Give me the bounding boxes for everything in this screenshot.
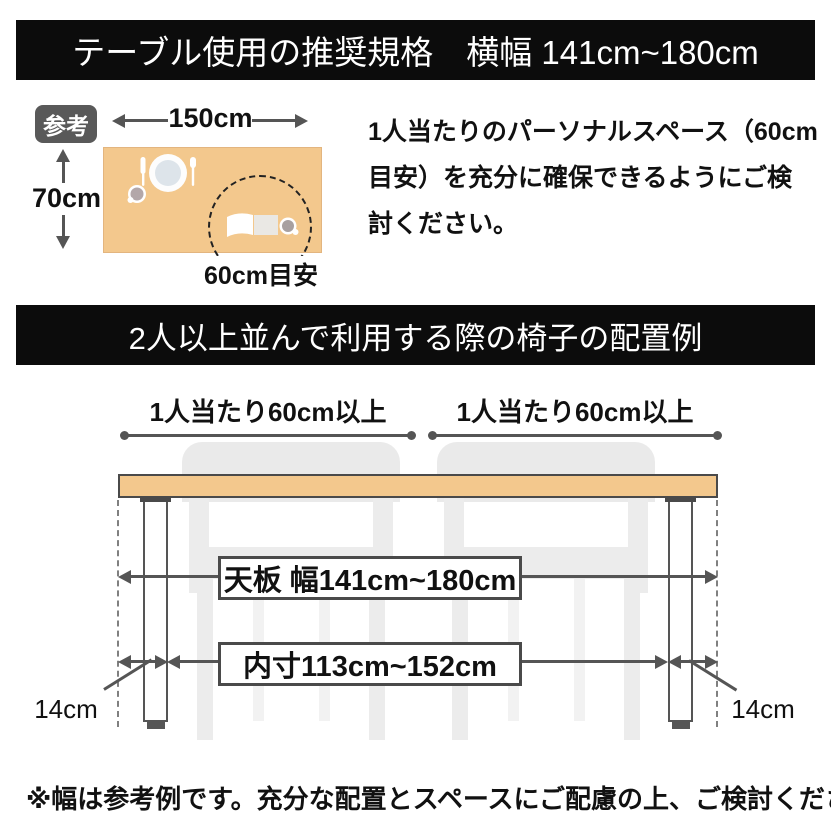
- knife-icon: [141, 157, 146, 186]
- table-leg-cap-right: [665, 497, 696, 502]
- table-leg-left: [143, 496, 168, 722]
- coffee-cup-icon: [280, 218, 299, 236]
- inner-arrowhead-right-icon: [655, 655, 668, 669]
- tabletop-width-box: 天板 幅141cm~180cm: [218, 556, 522, 600]
- middle-banner-title: 2人以上並んで利用する際の椅子の配置例: [129, 313, 703, 358]
- top-banner-title: テーブル使用の推奨規格 横幅 141cm~180cm: [72, 26, 759, 74]
- fork-icon: [190, 157, 196, 186]
- depth-arrow-line-bottom: [62, 215, 65, 237]
- reading-set-svg: [223, 209, 303, 241]
- width-arrowhead-right-icon: [295, 114, 308, 128]
- dim-dot-icon: [407, 431, 416, 440]
- table-leg-cap-left: [140, 497, 171, 502]
- table-spec-infographic: テーブル使用の推奨規格 横幅 141cm~180cm 参考 150cm 70cm: [0, 0, 831, 831]
- offset-right-arrowhead-right-icon: [705, 655, 718, 669]
- table-leg-foot-right: [672, 721, 690, 729]
- open-book-icon: [227, 213, 278, 237]
- reading-set-icons: [223, 209, 303, 246]
- reference-note-line3: 討ください。: [368, 201, 818, 247]
- per-person-right-label: 1人当たり60cm以上: [437, 392, 713, 429]
- per-person-left-label: 1人当たり60cm以上: [130, 392, 406, 429]
- inner-arrow-line-right: [522, 660, 656, 663]
- personal-space-label: 60cm目安: [202, 256, 320, 292]
- place-setting-icons: [126, 151, 204, 210]
- tabletop-arrow-line-right: [522, 575, 706, 578]
- table-width-label: 150cm: [168, 103, 253, 134]
- plate-icon: [149, 154, 187, 192]
- leg-offset-left-label: 14cm: [28, 694, 104, 725]
- table-edge-guide-right: [716, 500, 718, 727]
- cup-icon: [128, 185, 147, 203]
- tabletop-arrow-line-left: [130, 575, 218, 578]
- dim-dot-icon: [120, 431, 129, 440]
- table-depth-label: 70cm: [32, 183, 98, 214]
- tabletop-arrowhead-right-icon: [705, 570, 718, 584]
- dim-dot-icon: [713, 431, 722, 440]
- table-edge-guide-left: [117, 500, 119, 727]
- table-leg-right: [668, 496, 693, 722]
- leg-offset-right-label: 14cm: [725, 694, 801, 725]
- table-leg-foot-left: [147, 721, 165, 729]
- middle-banner: 2人以上並んで利用する際の椅子の配置例: [16, 305, 815, 365]
- place-setting-svg: [126, 151, 204, 205]
- inner-arrow-line-left: [179, 660, 218, 663]
- reference-note-line1: 1人当たりのパーソナルスペース（60cm: [368, 109, 818, 155]
- reference-note: 1人当たりのパーソナルスペース（60cm 目安）を充分に確保できるようにご検 討…: [368, 109, 818, 247]
- width-arrow-line-left: [124, 119, 168, 122]
- tabletop-side-view: [118, 474, 718, 498]
- depth-arrowhead-down-icon: [56, 236, 70, 249]
- per-person-left-line: [125, 434, 412, 437]
- offset-left-arrowhead-right-icon: [155, 655, 168, 669]
- reference-note-line2: 目安）を充分に確保できるようにご検: [368, 155, 818, 201]
- depth-arrow-line-top: [62, 161, 65, 183]
- per-person-right-line: [433, 434, 718, 437]
- inner-width-box: 内寸113cm~152cm: [218, 642, 522, 686]
- top-banner: テーブル使用の推奨規格 横幅 141cm~180cm: [16, 20, 815, 80]
- width-arrow-line-right: [252, 119, 296, 122]
- reference-badge: 参考: [35, 105, 97, 143]
- dim-dot-icon: [428, 431, 437, 440]
- footnote: ※幅は参考例です。充分な配置とスペースにご配慮の上、ご検討ください。: [26, 779, 831, 816]
- chair-leg: [574, 579, 585, 721]
